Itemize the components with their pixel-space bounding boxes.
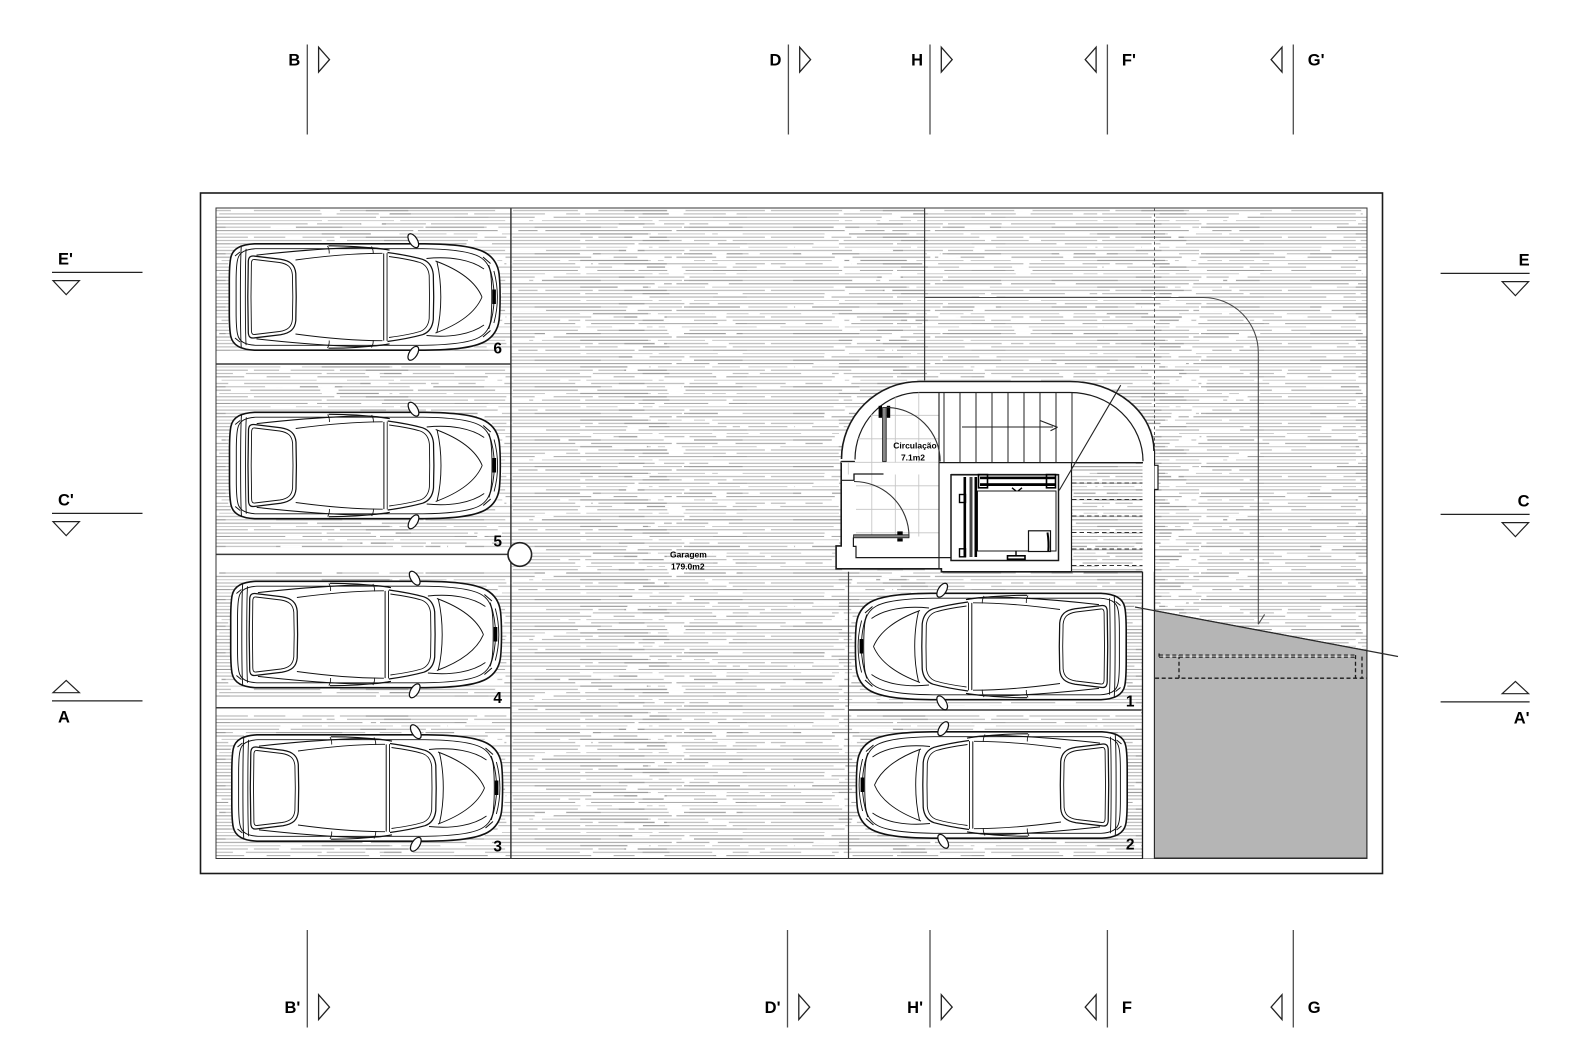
svg-text:B': B' [284,999,300,1017]
svg-text:179.0m2: 179.0m2 [671,562,705,572]
svg-text:C: C [1518,492,1530,510]
svg-text:Garagem: Garagem [670,550,707,560]
svg-text:D: D [769,52,781,70]
svg-text:H: H [911,52,923,70]
svg-text:3: 3 [493,839,502,856]
svg-text:C': C' [58,491,74,509]
svg-text:H': H' [907,999,923,1017]
svg-text:B: B [288,52,300,70]
svg-text:4: 4 [493,690,502,707]
svg-text:E: E [1519,251,1530,269]
svg-text:G': G' [1308,52,1325,70]
svg-text:1: 1 [1126,694,1135,711]
svg-text:D': D' [765,999,781,1017]
svg-text:6: 6 [493,341,502,358]
svg-text:F': F' [1122,52,1136,70]
svg-text:A': A' [1514,709,1530,727]
svg-text:7.1m2: 7.1m2 [901,453,925,463]
svg-text:F: F [1122,999,1132,1017]
svg-text:Circulação: Circulação [893,441,936,451]
svg-text:A: A [58,708,70,726]
svg-text:5: 5 [493,534,502,551]
svg-text:E': E' [58,250,73,268]
svg-text:G: G [1308,999,1321,1017]
svg-text:2: 2 [1126,837,1135,854]
